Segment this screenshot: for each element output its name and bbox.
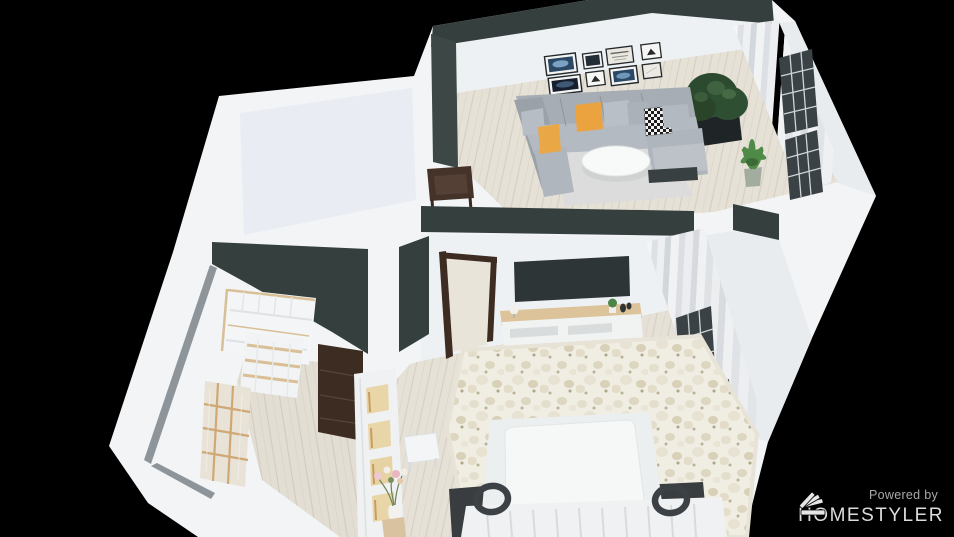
wall-frame (582, 52, 603, 69)
bedroom (354, 204, 812, 537)
floorplan-canvas (0, 0, 954, 537)
watermark: Powered by HOMESTYLER (798, 488, 944, 527)
homestyler-logo-icon (798, 488, 828, 518)
coffee-table (582, 146, 652, 182)
door-opening-floor (446, 258, 491, 352)
floorplan-render: Powered by HOMESTYLER (0, 0, 954, 537)
wall-frame (548, 75, 582, 96)
wall-frame (641, 43, 662, 60)
wall-frame (606, 46, 634, 65)
decor-vase (620, 304, 626, 313)
wall-frame (609, 66, 638, 86)
pillow-gray (603, 100, 631, 127)
living-window (779, 49, 818, 134)
pillow-gray (662, 104, 690, 128)
tv-screen (514, 256, 630, 302)
living-window (785, 130, 823, 200)
dark-corner-wall (431, 34, 458, 168)
dark-accent-panel (399, 236, 429, 352)
plant-pot (744, 167, 762, 187)
flower-stool (382, 517, 406, 537)
pillow-orange (538, 124, 561, 154)
glass-cabinet (200, 381, 251, 487)
table-lamp (510, 306, 519, 315)
decor-vase (627, 303, 632, 310)
wall-frame (642, 63, 662, 79)
dark-accent-band (421, 206, 694, 236)
wall-frame (544, 53, 577, 76)
mini-plant (608, 299, 617, 314)
pillow-orange (575, 102, 603, 132)
wall-frame (586, 71, 606, 87)
